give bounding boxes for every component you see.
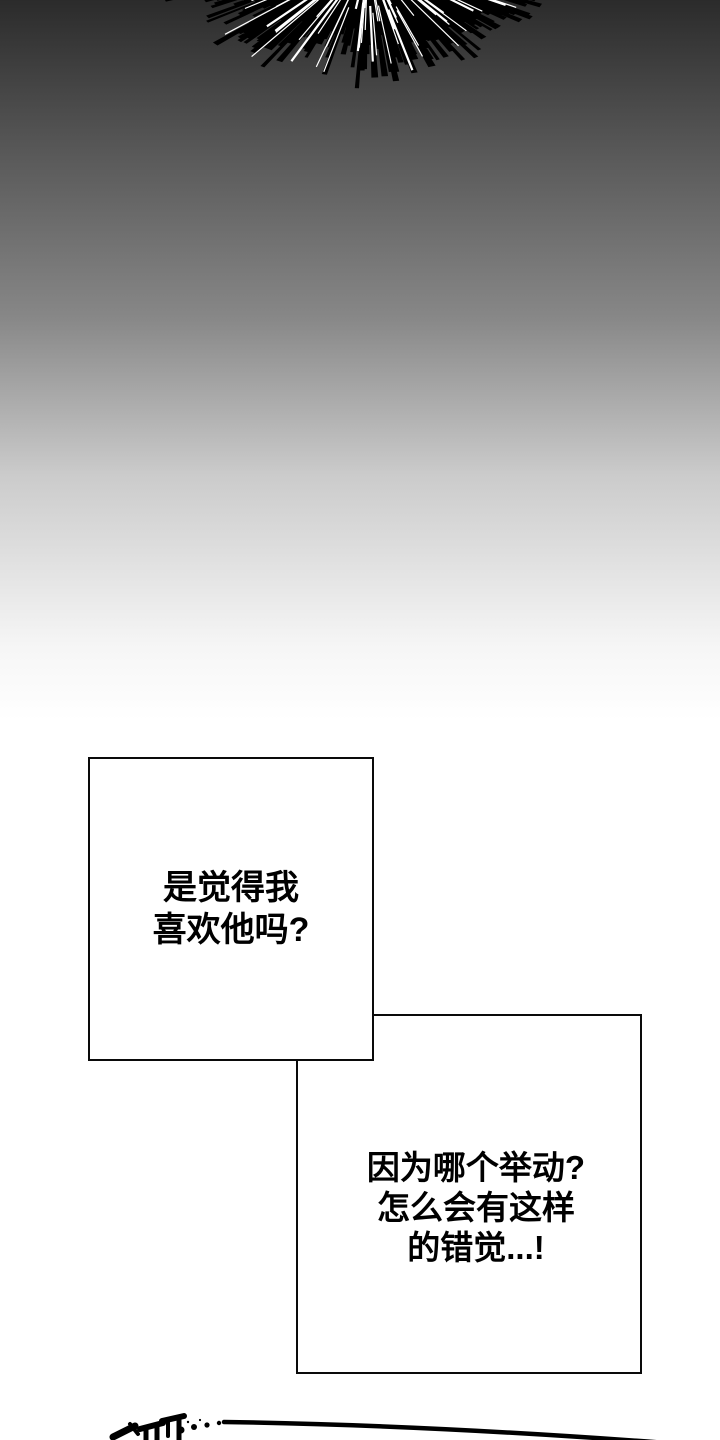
thought-box-2-line-1: 因为哪个举动? — [367, 1148, 585, 1188]
thought-box-1: 是觉得我 喜欢他吗? — [88, 757, 374, 1061]
sfx-glyphs — [113, 1416, 184, 1440]
comic-page: 因为哪个举动? 怎么会有这样 的错觉...! 是觉得我 喜欢他吗? — [0, 0, 720, 1440]
thought-box-1-line-1: 是觉得我 — [153, 867, 310, 909]
thought-box-2-text: 因为哪个举动? 怎么会有这样 的错觉...! — [367, 1148, 585, 1268]
thought-box-2-line-2: 怎么会有这样 — [367, 1188, 585, 1228]
speed-line-burst — [0, 0, 720, 132]
sfx-curve-line — [224, 1422, 680, 1440]
sfx-dots — [178, 1419, 222, 1434]
thought-box-1-line-2: 喜欢他吗? — [153, 909, 310, 951]
sfx-drawing — [95, 1398, 695, 1440]
thought-box-1-text: 是觉得我 喜欢他吗? — [153, 867, 310, 951]
thought-box-2-line-3: 的错觉...! — [367, 1228, 585, 1268]
thought-box-2: 因为哪个举动? 怎么会有这样 的错觉...! — [296, 1014, 642, 1374]
